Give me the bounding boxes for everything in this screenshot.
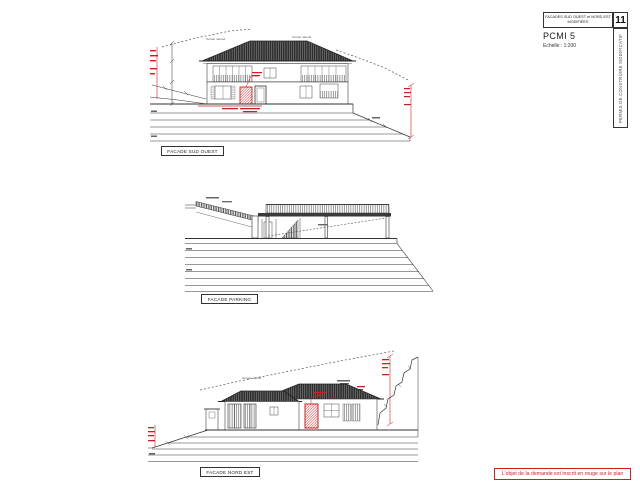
roof <box>199 41 356 64</box>
red-annotation-left <box>150 47 158 99</box>
roof-level-mark <box>337 380 350 382</box>
facade-nord-est-label-text: FACADE NORD EST <box>206 470 253 475</box>
scale-label: Echelle : 1:200 <box>543 43 576 49</box>
level-mark <box>151 136 157 138</box>
side-strip-text: PERMIS DE CONSTRUIRE MODIFICATIF <box>618 33 623 122</box>
facade-sud-ouest-label-text: FACADE SUD OUEST <box>167 149 217 154</box>
side-strip: PERMIS DE CONSTRUIRE MODIFICATIF <box>613 28 628 128</box>
drawing-title-line2: MODIFIÉES <box>568 20 589 25</box>
ground-terraces <box>185 239 433 292</box>
natural-terrain-dashed-line <box>200 351 394 390</box>
red-annotation-right <box>404 83 414 139</box>
facade-parking-label: FACADE PARKING <box>201 294 258 304</box>
facade-parking-label-text: FACADE PARKING <box>208 297 252 302</box>
level-mark <box>186 269 192 271</box>
facade-parking-drawing <box>183 192 435 294</box>
ground-terraces <box>150 97 410 141</box>
ground-floor <box>207 82 348 104</box>
facade-nord-est-label: FACADE NORD EST <box>200 467 260 477</box>
slope-dim-mark <box>372 117 380 119</box>
access-ramp <box>185 197 258 238</box>
facade-sud-ouest-drawing: Terrain naturel Terrain naturel <box>146 14 422 146</box>
facade-sud-ouest-label: FACADE SUD OUEST <box>161 146 224 156</box>
drawing-sheet: Terrain naturel Terrain naturel <box>0 0 640 483</box>
level-mark <box>149 453 155 455</box>
stepped-terrain-right <box>378 357 418 437</box>
dimension-marks <box>152 41 206 106</box>
facade-nord-est-drawing: Terrain naturel <box>146 344 422 464</box>
parking-deck <box>258 205 391 239</box>
ground-terraces <box>148 430 418 462</box>
terrain-label: Terrain naturel <box>292 35 312 39</box>
level-mark <box>186 248 192 250</box>
piece-code: PCMI 5 <box>543 31 575 41</box>
title-block-drawing-title: FACADES SUD OUEST et NORD EST MODIFIÉES <box>543 12 613 28</box>
terrain-label: Terrain naturel <box>242 376 262 380</box>
red-annotation-left <box>148 425 155 447</box>
annex-pillar <box>204 409 220 430</box>
sheet-number: 11 <box>613 12 628 28</box>
level-mark <box>151 111 157 113</box>
red-legend-note: L'objet de la demande est inscrit en rou… <box>494 468 631 480</box>
terrain-label: Terrain naturel <box>206 37 226 41</box>
